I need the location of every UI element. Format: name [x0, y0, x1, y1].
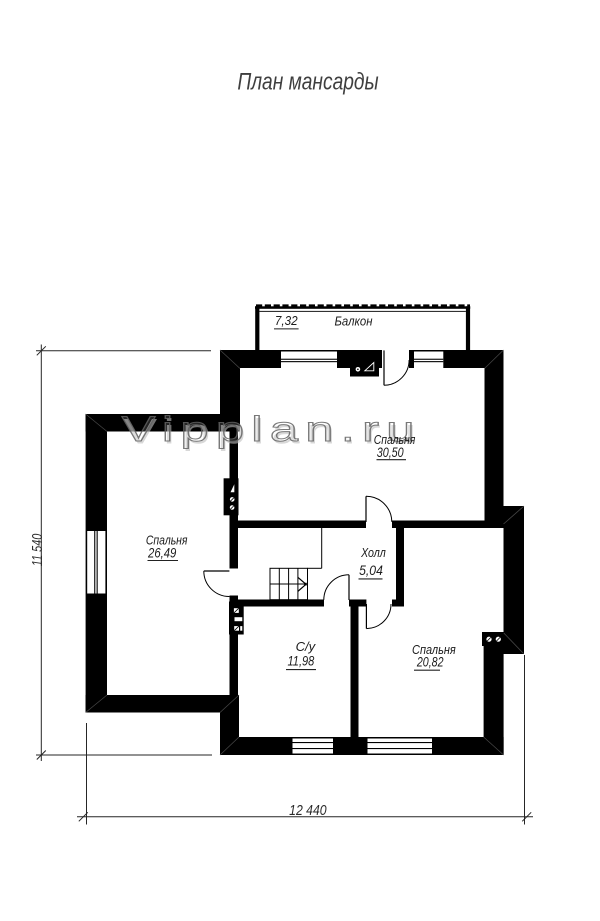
svg-text:26,49: 26,49 — [147, 544, 176, 560]
svg-text:11 540: 11 540 — [28, 533, 45, 566]
svg-text:20,82: 20,82 — [416, 654, 444, 670]
svg-text:30,50: 30,50 — [377, 445, 404, 461]
svg-text:12 440: 12 440 — [289, 802, 327, 818]
svg-text:С/у: С/у — [296, 639, 317, 654]
svg-text:Холл: Холл — [360, 545, 386, 560]
svg-text:5,04: 5,04 — [359, 562, 383, 578]
svg-text:7,32: 7,32 — [275, 313, 298, 328]
svg-text:Балкон: Балкон — [334, 314, 372, 329]
svg-text:План мансарды: План мансарды — [237, 67, 378, 95]
svg-text:11,98: 11,98 — [287, 653, 314, 669]
